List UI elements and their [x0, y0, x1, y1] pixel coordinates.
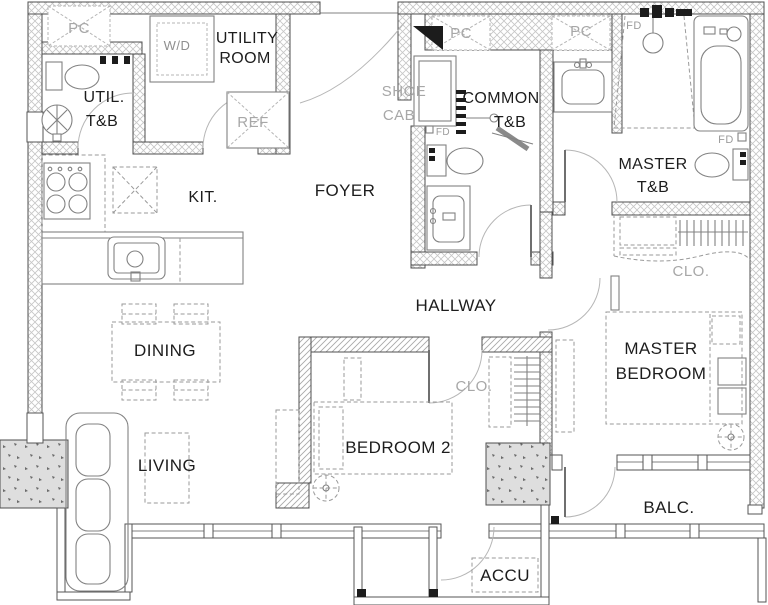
living-furniture [66, 410, 299, 591]
toilet [695, 149, 748, 180]
room-labels: PC PC PC W/D UTILITY ROOM UTIL. T&B REF … [68, 20, 734, 585]
label-kitchen: KIT. [188, 189, 217, 206]
toilet [427, 145, 483, 176]
tv-console [276, 410, 299, 494]
label-common-tb-line2: T&B [494, 114, 526, 131]
label-refrigerator: REF [237, 114, 269, 131]
label-washer-dryer: W/D [164, 38, 191, 53]
bedside-table [344, 358, 361, 400]
bedroom2-furniture [313, 358, 452, 501]
ceiling-fan [718, 424, 744, 450]
label-master-tb-line1: MASTER [618, 156, 687, 173]
master-bedroom-door [548, 278, 600, 330]
label-living: LIVING [138, 456, 196, 475]
label-bedroom2: BEDROOM 2 [345, 438, 451, 457]
range-hood [113, 167, 157, 213]
label-closet-master: CLO. [672, 263, 709, 280]
closet-shelf [620, 217, 676, 245]
window-bands [57, 455, 766, 605]
shower-bar [492, 128, 533, 149]
master-bedroom-furniture [556, 276, 746, 450]
label-pc-3: PC [570, 23, 592, 40]
label-accu: ACCU [480, 566, 530, 585]
label-master-bedroom-line1: MASTER [624, 339, 697, 358]
label-fd-common: FD [436, 127, 450, 138]
walls-interior [42, 14, 750, 455]
balcony-door [565, 467, 615, 517]
cabinet [611, 276, 619, 310]
master-tb-door [565, 150, 617, 202]
label-shoe-cab-line2: CAB [383, 107, 415, 124]
sofa [66, 413, 128, 591]
label-utility-room-line2: ROOM [219, 50, 270, 67]
label-pc-1: PC [68, 20, 90, 37]
label-util-tb-line1: UTIL. [83, 89, 124, 106]
floor-plan-drawing: PC PC PC W/D UTILITY ROOM UTIL. T&B REF … [0, 0, 768, 605]
label-closet-hall: CLO. [455, 378, 492, 395]
label-shoe-cab-line1: SHOE [382, 83, 427, 100]
shower-valves [100, 56, 130, 64]
water-heater [42, 105, 72, 141]
toilet [46, 62, 99, 90]
ceiling-fan [313, 475, 339, 501]
stove [44, 163, 90, 219]
label-common-tb-line1: COMMON [462, 90, 539, 107]
label-dining: DINING [134, 341, 196, 360]
hangers [680, 220, 743, 246]
kitchen-sink [108, 237, 165, 281]
master-closet [614, 214, 750, 261]
label-master-bedroom-line2: BEDROOM [616, 364, 707, 383]
label-pc-2: PC [450, 25, 472, 42]
label-balcony: BALC. [643, 498, 694, 517]
bedroom2-door [429, 350, 482, 403]
label-utility-room-line1: UTILITY [216, 30, 278, 47]
hall-closet [489, 356, 540, 427]
label-util-tb-line2: T&B [86, 113, 118, 130]
label-foyer: FOYER [315, 181, 376, 200]
pillow [712, 316, 740, 344]
floor-plan: PC PC PC W/D UTILITY ROOM UTIL. T&B REF … [0, 0, 768, 605]
label-fd-tub: FD [718, 134, 734, 146]
kitchen-fixtures [42, 155, 243, 284]
bathtub [694, 16, 748, 131]
lavatory [554, 59, 612, 112]
concrete-columns [0, 440, 550, 508]
label-fd-shower: FD [626, 20, 642, 32]
dresser [556, 340, 574, 432]
label-master-tb-line2: T&B [637, 179, 669, 196]
common-tb-door [479, 205, 531, 257]
label-hallway: HALLWAY [416, 296, 497, 315]
pillow [319, 407, 343, 469]
vanity-sink [427, 186, 470, 250]
